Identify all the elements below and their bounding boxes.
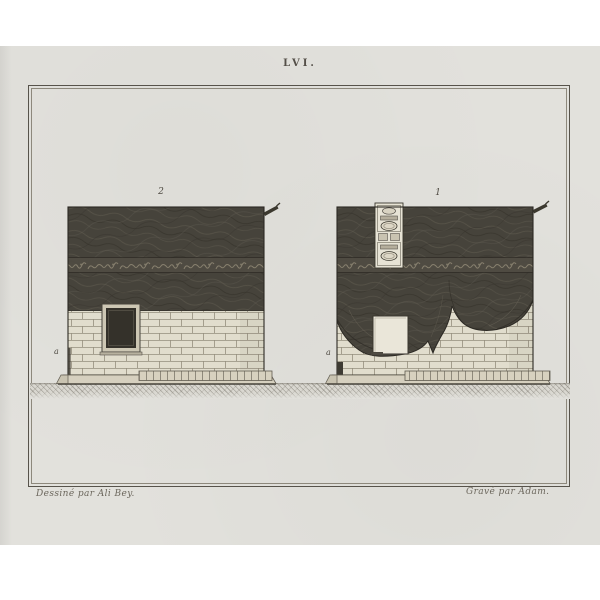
figure-number-1: 1 [435, 188, 441, 198]
hizam-inscription-band [68, 258, 264, 273]
reference-letter-a-left: a [54, 347, 59, 356]
door-curtain-ornament-band [375, 203, 403, 268]
reference-letter-a-right: a [326, 348, 331, 357]
rain-spout [533, 201, 549, 214]
rain-spout [264, 203, 280, 216]
credit-engraver: Gravé par Adam. [466, 487, 549, 497]
engraved-plate-paper: LVI. [0, 46, 600, 545]
door-covered [100, 304, 142, 355]
door-open [371, 316, 408, 356]
masonry-wall [68, 311, 264, 375]
corner-shadow [68, 348, 71, 375]
figure-kaaba-curtain-raised [325, 200, 560, 390]
corner-step [337, 362, 343, 375]
hizam-inscription-band [337, 258, 533, 273]
plate-number: LVI. [0, 58, 600, 69]
figure-kaaba-covered [55, 200, 285, 390]
credit-draughtsman: Dessiné par Ali Bey. [36, 489, 135, 499]
figure-number-2: 2 [158, 187, 164, 197]
wall-shading [240, 311, 264, 375]
